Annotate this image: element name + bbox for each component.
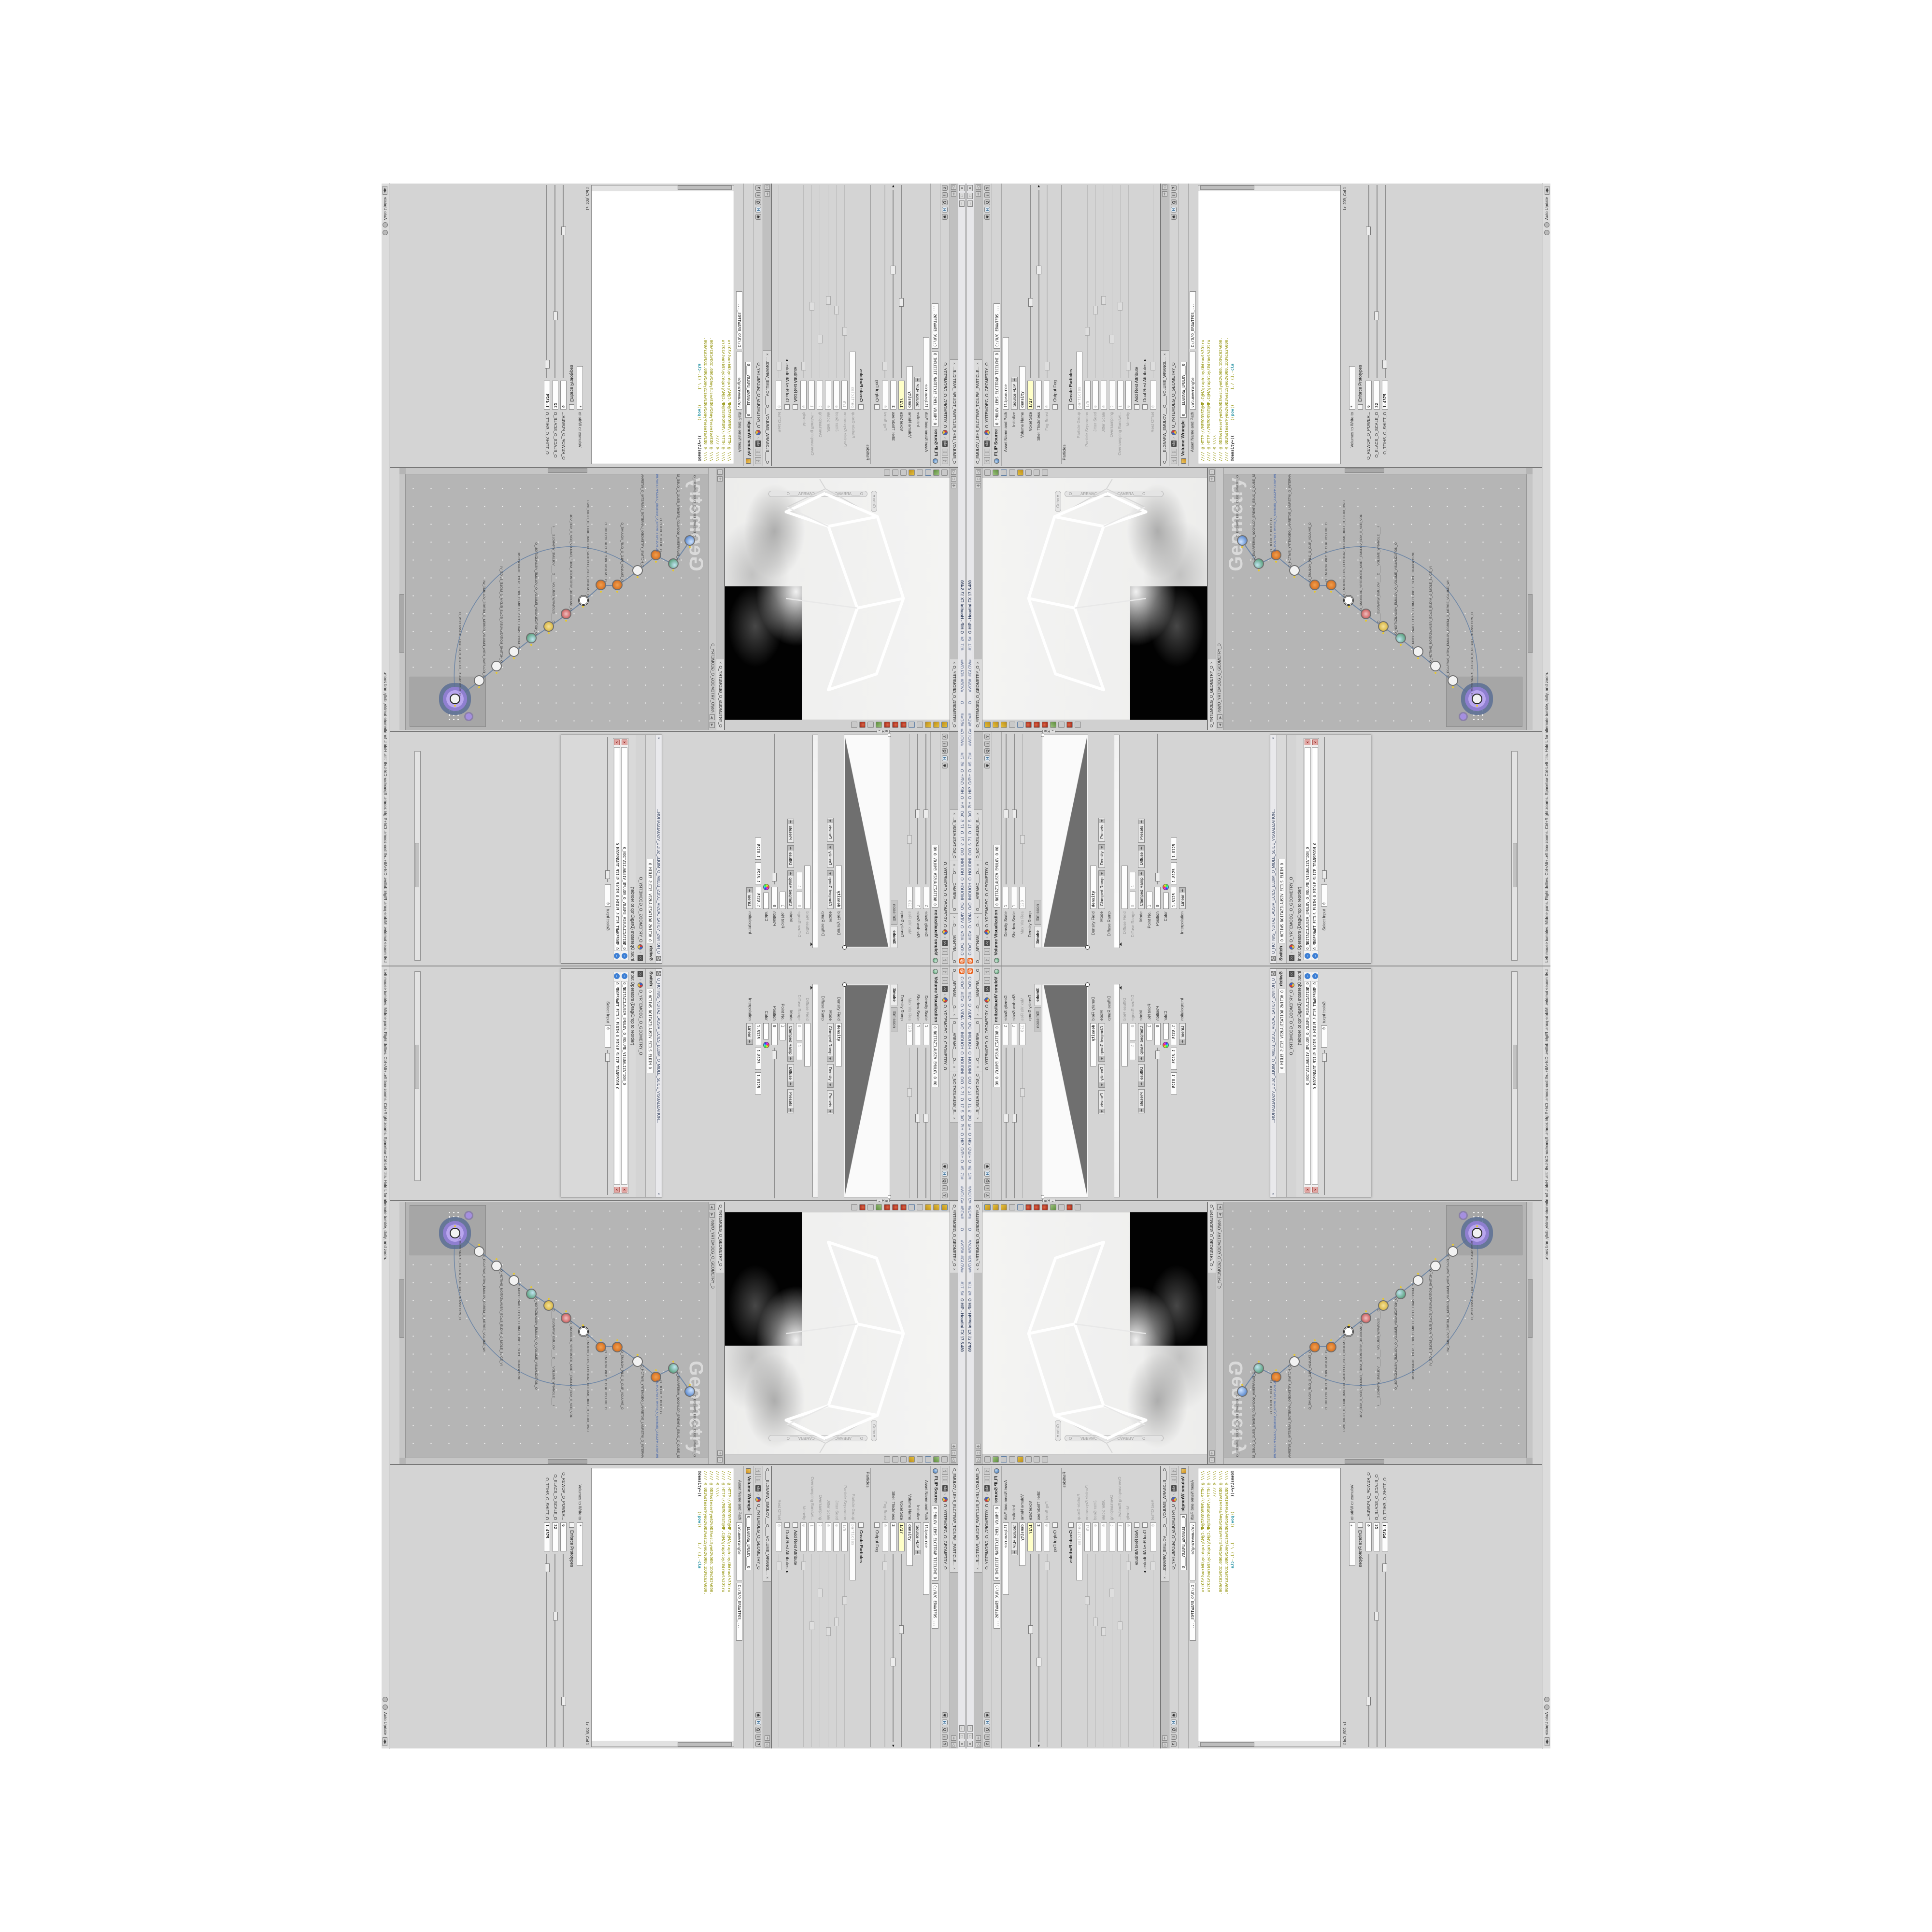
max-vis-res-slider[interactable]	[1020, 1048, 1025, 1198]
jitter-seed-field[interactable]: 0	[833, 1522, 839, 1551]
search-icon[interactable]: Q	[755, 199, 761, 205]
tab-close-icon[interactable]: ×	[976, 362, 980, 365]
oversampling-slider[interactable]	[1109, 1554, 1115, 1747]
position-slider[interactable]	[772, 734, 778, 884]
network-node[interactable]: O_EMULOV_PILC_O_CLIP_VOLUME_O	[596, 1342, 606, 1352]
volume-name-field[interactable]: density	[1019, 366, 1025, 410]
shell-thickness-field[interactable]: 3	[1036, 381, 1042, 410]
density-scale-slider[interactable]	[923, 1048, 929, 1198]
volumes-field[interactable]: *	[577, 366, 583, 410]
shell-thickness-field[interactable]: 3	[890, 1522, 896, 1551]
breadcrumb-node[interactable]: O_YRTEMOEG_O_GEOMETRY_O	[1289, 990, 1294, 1055]
nav-up-icon[interactable]: ⇧	[755, 1468, 761, 1475]
snap-prim-icon[interactable]	[859, 1204, 866, 1210]
shift-field[interactable]: 1.4375	[1382, 1522, 1388, 1551]
tab-close-icon[interactable]: ×	[952, 1117, 956, 1120]
pane-tab[interactable]: O_NOITAZILAUSIV_E...×	[974, 1071, 982, 1122]
power-field[interactable]: 6	[560, 1522, 567, 1551]
scene-viewport[interactable]: Ortho ▾ O____AREMAC____O____CAMERA____O	[982, 1202, 1208, 1464]
display-volume-icon[interactable]	[1001, 470, 1007, 476]
collapse-pane-icon[interactable]: ◁	[765, 1742, 770, 1747]
flip-node-field[interactable]: O_EMULOV_LEHS_ELCITRAP_TICILPMI_D	[994, 351, 1000, 427]
help-icon[interactable]: ?	[984, 1741, 990, 1747]
flipbook-icon[interactable]	[917, 722, 923, 728]
viewport-pane-tab[interactable]: O_YRTEMOEG_O_GEOMETRY_O×	[974, 1202, 982, 1273]
net-back-icon[interactable]: ◄	[1217, 722, 1222, 728]
maximize-button[interactable]: □	[967, 1733, 973, 1739]
diffuse-field-field[interactable]	[804, 866, 810, 909]
houdini-h-icon[interactable]: H	[942, 1719, 948, 1725]
output-fog-checkbox[interactable]	[874, 404, 880, 410]
houdini-h-icon[interactable]: H	[942, 755, 948, 761]
volume-name-field[interactable]: density	[907, 366, 913, 410]
help-icon[interactable]: ?	[942, 185, 948, 191]
tab-close-icon[interactable]: ×	[952, 916, 956, 919]
network-node[interactable]: O_MROFSNART_TLUSER_O_RESULT_TRANSFORM_O	[1472, 1228, 1482, 1238]
info-overlay-icon[interactable]	[1042, 470, 1048, 476]
density-target-dropdown[interactable]: Density	[827, 844, 834, 868]
network-editor[interactable]: O_YRTEMOEG_O_GEOMETRY_O× ✛ □ ◄ ► /obj/O_…	[1208, 468, 1533, 730]
net-back-icon[interactable]: ◄	[710, 722, 715, 728]
gear-icon[interactable]: ✱	[942, 1712, 948, 1718]
diffuse-range-min[interactable]: 0	[1130, 892, 1136, 909]
grid-toggle-icon[interactable]	[900, 1456, 907, 1463]
wrangle-pane-tab[interactable]: O____ELGNARW_EMULOV___O____VOLUME_WRANGL…	[763, 1466, 771, 1582]
network-node[interactable]: O_EMULOV_LEHS_ELCITRAP_TICILPMI_DIULF_O_…	[578, 595, 589, 606]
info-icon[interactable]: i	[1171, 1734, 1177, 1740]
diffuse-ramp-marker[interactable]	[1118, 986, 1122, 990]
color-g-field[interactable]: 1.8125	[1171, 1048, 1177, 1070]
jitter-seed-slider[interactable]	[1093, 185, 1098, 378]
remove-input-icon[interactable]: ×	[1312, 1187, 1318, 1193]
network-node[interactable]: O____ELGNARW_EMULOV____O____VOLUME_WRANG…	[543, 621, 554, 632]
input-operator-row[interactable]: → O_NOITAZILAUSIV_EMULOV_O_VOLUME_VISUAL…	[1304, 739, 1311, 960]
velocity-slider[interactable]	[801, 185, 807, 378]
breadcrumb-node[interactable]: O_YRTEMOEG_O_GEOMETRY_O	[985, 1005, 990, 1070]
network-node[interactable]: O_EMULOV_LEHS_ELCITRAP_TICILPMI_DIULF_O_…	[1343, 595, 1354, 606]
tab-close-icon[interactable]: ×	[952, 1268, 956, 1271]
oversampling-field[interactable]: 2	[1109, 381, 1115, 410]
volume-visualization-node-field[interactable]: O_NOITAZILAUSIV_EMULOV_O_VO	[932, 1024, 939, 1087]
fog-boost-slider[interactable]	[882, 185, 888, 378]
obj-context-icon[interactable]: obj	[984, 940, 990, 946]
initialize-dropdown[interactable]: Source FLIP	[1011, 377, 1018, 410]
wrangle-node-field[interactable]: O____ELGNARW_EMULOV____O	[745, 362, 752, 418]
power-slider[interactable]	[1365, 1554, 1371, 1747]
rest-offset-field[interactable]: 0	[776, 1522, 782, 1551]
shadow-scale-field[interactable]: 1	[915, 1023, 921, 1045]
tab-close-icon[interactable]: ×	[718, 1268, 722, 1271]
jitter-seed-field[interactable]: 0	[1093, 381, 1099, 410]
collapse-pane-icon[interactable]: ◁	[1162, 1742, 1167, 1747]
code-vscrollbar[interactable]	[592, 185, 734, 191]
network-node[interactable]: O____ELGNARW_EMULOV____O____VOLUME_WRANG…	[1378, 1300, 1389, 1311]
density-target-dropdown[interactable]: Density	[1098, 1064, 1105, 1088]
axis-gnomon-icon[interactable]	[1050, 722, 1056, 728]
rest-offset-field[interactable]: 0	[1150, 1522, 1156, 1551]
nav-up-icon[interactable]: ⇧	[942, 1468, 948, 1475]
velocity-slider[interactable]	[1125, 1554, 1131, 1747]
channel-pin-icon[interactable]: ▸	[1036, 185, 1041, 187]
create-particles-checkbox[interactable]	[1068, 404, 1074, 410]
group-list-icon[interactable]	[1034, 1456, 1040, 1463]
oversampling-bw-field[interactable]: 1	[809, 1522, 815, 1551]
network-editor[interactable]: O_YRTEMOEG_O_GEOMETRY_O× ✛ □ ◄ ► /obj/O_…	[1208, 1202, 1533, 1464]
oversampling-slider[interactable]	[1109, 185, 1115, 378]
code-vscrollbar[interactable]	[592, 1741, 734, 1747]
jitter-scale-field[interactable]: 0	[825, 381, 831, 410]
particle-separation-slider[interactable]	[1084, 185, 1090, 378]
network-node[interactable]: O____ELGNARW_EMULOV____O____VOLUME_WRANG…	[1378, 621, 1389, 632]
breadcrumb-node[interactable]: O_YRTEMOEG_O_GEOMETRY_O	[638, 990, 643, 1055]
grid-toggle-icon[interactable]	[1025, 470, 1032, 476]
breadcrumb-node[interactable]: O_YRTEMOEG_O_GEOMETRY_O	[638, 877, 643, 942]
shade-flat-icon[interactable]	[993, 1204, 999, 1210]
nav-down-icon[interactable]: ⇩	[1171, 449, 1177, 455]
pane-tab[interactable]: O_NOITAZILAUSIV_E...×	[950, 810, 958, 861]
search-icon[interactable]: Q	[942, 748, 948, 754]
network-pane-tab[interactable]: O_YRTEMOEG_O_GEOMETRY_O×	[716, 1202, 724, 1273]
switch-node-field[interactable]: O_HCTIWS_NOITAZILAUSIV_ECILS_ELDIM_O_	[647, 989, 654, 1073]
help-icon[interactable]: ?	[1171, 1741, 1177, 1747]
shell-thickness-slider[interactable]	[1036, 190, 1042, 378]
houdini-h-icon[interactable]: H	[755, 207, 761, 213]
diffuse-ramp-strip[interactable]	[812, 984, 818, 1197]
diffuse-target-dropdown[interactable]: Diffuse	[1138, 1064, 1145, 1087]
breadcrumb-node[interactable]: O_YRTEMOEG_O_GEOMETRY_O	[985, 862, 990, 927]
oversampling-field[interactable]: 2	[817, 1522, 823, 1551]
remove-input-icon[interactable]: ×	[614, 1187, 620, 1193]
flip-path-field[interactable]: C:/O/O_ERAWTFOS_...	[994, 303, 1000, 349]
diffuse-target-dropdown[interactable]: Diffuse	[1138, 845, 1145, 868]
gear-icon[interactable]: ✱	[755, 214, 761, 220]
jitter-scale-field[interactable]: 0	[1101, 381, 1107, 410]
tab-smoke[interactable]: Smoke	[1035, 926, 1041, 948]
display-volume-icon[interactable]	[925, 1456, 931, 1463]
density-mode-dropdown[interactable]: Clamped Ramp	[827, 870, 834, 909]
headlight-icon[interactable]	[909, 1456, 915, 1463]
network-node[interactable]: O_NOITAZILAUSIV_EMULOV_O_VOLUME_VISUALIZ…	[1395, 633, 1406, 643]
diffuse-presets-dropdown[interactable]: Presets	[788, 1089, 795, 1113]
snap-magnet-icon[interactable]	[900, 722, 907, 728]
network-node[interactable]: O_SNOGILOP_YRTEMOEG_MORF_EMULOV_BDV_O_VD…	[561, 609, 571, 619]
group-list-icon[interactable]	[892, 1456, 898, 1463]
nav-down-icon[interactable]: ⇩	[984, 948, 990, 955]
camera-view-icon[interactable]	[933, 470, 939, 476]
color-swatch[interactable]	[1163, 1023, 1169, 1039]
network-path[interactable]: /obj/O_YRTEMOEG_O_GEOMETRY_O	[1217, 643, 1222, 712]
flipbook-icon[interactable]	[1009, 722, 1015, 728]
position-field[interactable]: 0	[771, 1023, 778, 1045]
search-icon[interactable]: Q	[984, 1727, 990, 1733]
corner-drag-icon[interactable]: ✛	[952, 191, 957, 197]
snap-point-icon[interactable]	[1042, 722, 1048, 728]
color-swatch[interactable]	[764, 1023, 769, 1039]
snap-point-icon[interactable]	[884, 1204, 890, 1210]
nav-up-icon[interactable]: ⇧	[984, 968, 990, 975]
create-particles-checkbox[interactable]	[858, 1522, 864, 1528]
flip-path-field[interactable]: C:/O/O_ERAWTFOS_...	[932, 303, 939, 349]
search-icon[interactable]: Q	[1171, 199, 1177, 205]
interpolation-dropdown[interactable]: Linear	[1179, 1023, 1186, 1045]
dual-rest-checkbox[interactable]	[1142, 404, 1148, 410]
pane-tab[interactable]: O____ARTNAM____O...×	[974, 966, 982, 1019]
tab-close-icon[interactable]: ×	[1163, 353, 1167, 355]
obj-context-icon[interactable]: obj	[1171, 440, 1177, 447]
network-node[interactable]: O_MROFSNART_ECILS_ELDIM_O_MIDLE_SLICE_TR…	[1413, 1275, 1423, 1286]
dual-rest-checkbox[interactable]	[784, 1522, 790, 1528]
nav-down-icon[interactable]: ⇩	[942, 449, 948, 455]
power-slider[interactable]	[1365, 185, 1371, 378]
diffuse-ramp-marker[interactable]	[1118, 942, 1122, 946]
select-input-field[interactable]: 0	[605, 1025, 611, 1048]
jitter-scale-field[interactable]: 0	[825, 1522, 831, 1551]
camera-view-icon[interactable]	[993, 470, 999, 476]
net-forward-icon[interactable]: ►	[710, 1212, 715, 1218]
shade-smooth-icon[interactable]	[941, 1204, 948, 1210]
pane-tab[interactable]: O____ARTNAM____O...×	[950, 913, 958, 966]
display-volume-icon[interactable]	[1001, 1456, 1007, 1463]
corner-drag-icon[interactable]: ✛	[1209, 1450, 1215, 1456]
search-icon[interactable]: Q	[1171, 1727, 1177, 1733]
breadcrumb-node[interactable]: O_YRTEMOEG_O_GEOMETRY_O	[756, 1504, 761, 1570]
tab-smoke[interactable]: Smoke	[1035, 984, 1041, 1006]
obj-context-icon[interactable]: obj	[638, 971, 643, 977]
info-overlay-icon[interactable]	[884, 1456, 890, 1463]
lighting-icon[interactable]	[917, 470, 923, 476]
info-icon[interactable]: i	[984, 1734, 990, 1740]
network-editor[interactable]: O_YRTEMOEG_O_GEOMETRY_O× ✛ □ ◄ ► /obj/O_…	[399, 1202, 724, 1464]
search-icon[interactable]: Q	[984, 1178, 990, 1184]
network-node[interactable]: O_DLIUB_O_BUILD_O BD.NO1.PETS.TRIPAS_O_G…	[1271, 1372, 1281, 1382]
flip-pane-tab[interactable]: O_EMULOV_LEHS_ELCITRAP_TICILPMI_PARTICLE…	[974, 1466, 982, 1573]
oversampling-bw-slider[interactable]	[809, 185, 815, 378]
dual-rest-checkbox[interactable]	[1142, 1522, 1148, 1528]
flip-path-field[interactable]: C:/O/O_ERAWTFOS_...	[932, 1583, 939, 1629]
pane-tab[interactable]: O____ARTNAM____O...×	[974, 913, 982, 966]
partial-window-scrollbar[interactable]	[414, 971, 421, 1181]
net-forward-icon[interactable]: ►	[1217, 1212, 1222, 1218]
network-node[interactable]: O_ECAFRUS_HTIW_EMULOV_EGREM_O_MERGE_VOLU…	[1448, 1246, 1458, 1257]
network-vscrollbar[interactable]	[1224, 1458, 1526, 1464]
info-icon[interactable]: i	[984, 192, 990, 198]
obj-context-icon[interactable]: obj	[942, 1485, 948, 1492]
network-node[interactable]: O_EREHPS_EBUC_O_CUBE_SPHERE_O	[1237, 535, 1248, 546]
channel-pin-icon[interactable]: ▸	[785, 1571, 790, 1574]
network-node[interactable]: O_EMULOV_PILC_O_CLIP_VOLUME_O	[1326, 580, 1336, 590]
position-slider[interactable]	[1155, 734, 1161, 884]
info-overlay-icon[interactable]	[1042, 1456, 1048, 1463]
tab-close-icon[interactable]: ×	[718, 662, 722, 664]
network-node[interactable]: O_ENARFERIW_NOGYLOP_EREHPS_EBUC_O_CUBE_S…	[668, 1363, 679, 1374]
network-node[interactable]: O____ELGNARW_EMULOV____O____VOLUME_WRANG…	[543, 1300, 554, 1311]
rest-offset-slider[interactable]	[776, 1554, 782, 1747]
headlight-icon[interactable]	[1017, 470, 1023, 476]
point-no-field[interactable]: 1	[1146, 1023, 1152, 1040]
diffuse-target-dropdown[interactable]: Diffuse	[788, 1064, 795, 1087]
tab-emission[interactable]: Emission	[1035, 1007, 1041, 1032]
network-hscrollbar[interactable]	[1526, 1202, 1533, 1458]
viewport-pane-tab[interactable]: O_YRTEMOEG_O_GEOMETRY_O×	[950, 659, 958, 730]
max-vis-res-field[interactable]: 128	[1019, 887, 1025, 909]
network-node[interactable]: O_MROFSNART_ECILS_ELDIM_O_MIDLE_SLICE_TR…	[509, 1275, 519, 1286]
density-ramp-editor[interactable]: ⊞ +	[844, 984, 890, 1197]
diffuse-presets-dropdown[interactable]: Presets	[1138, 819, 1145, 843]
collapse-pane-icon[interactable]: ◁	[952, 469, 957, 475]
shift-slider[interactable]	[1382, 185, 1388, 378]
scene-viewport[interactable]: Ortho ▾ O____AREMAC____O____CAMERA____O	[724, 468, 950, 730]
tab-close-icon[interactable]: ×	[765, 1577, 769, 1579]
jitter-seed-field[interactable]: 0	[1093, 1522, 1099, 1551]
max-vis-res-field[interactable]: 128	[907, 1023, 913, 1045]
axis-gnomon-icon[interactable]	[876, 1204, 882, 1210]
density-target-dropdown[interactable]: Density	[827, 1064, 834, 1088]
shade-wire-icon[interactable]	[1001, 1204, 1007, 1210]
power-field[interactable]: 6	[1365, 381, 1372, 410]
info-icon[interactable]: i	[942, 192, 948, 198]
breadcrumb-node[interactable]: O_YRTEMOEG_O_GEOMETRY_O	[943, 862, 948, 927]
jitter-seed-slider[interactable]	[1093, 1554, 1098, 1747]
color-g-field[interactable]: 1.8125	[755, 862, 761, 884]
vex-code-editor[interactable]: //// @ HTTP://MEMORYST@MP.C@M/graphtoy/#…	[591, 1468, 734, 1747]
tab-close-icon[interactable]: ×	[952, 1013, 956, 1016]
help-icon[interactable]: ?	[755, 1741, 761, 1747]
power-field[interactable]: 6	[560, 381, 567, 410]
switch-window-close-icon[interactable]: ×	[1271, 1193, 1276, 1195]
tab-emission[interactable]: Emission	[1035, 900, 1041, 925]
pane-tab[interactable]: O____AREMAC____O...×	[950, 1019, 958, 1071]
input-operator-row[interactable]: → O_NOITAZILAUSIV_EMULOV_O_VOLUME_VISUAL…	[621, 739, 628, 960]
help-icon[interactable]: ?	[984, 185, 990, 191]
output-fog-checkbox[interactable]	[874, 1522, 880, 1528]
network-node[interactable]: O_ENARFERIW_NOGYLOP_EREHPS_EBUC_O_CUBE_S…	[1253, 558, 1264, 569]
obj-context-icon[interactable]: obj	[984, 986, 990, 992]
corner-drag-icon[interactable]: ✛	[976, 1735, 981, 1741]
auto-update-label[interactable]: Auto Update	[1545, 1712, 1549, 1735]
scale-slider[interactable]	[553, 1554, 558, 1747]
channel-pin-icon[interactable]: ▸	[1142, 359, 1147, 361]
shift-slider[interactable]	[1382, 1554, 1388, 1747]
ramp-handle-low[interactable]	[1085, 982, 1090, 987]
network-node[interactable]: O_NOITAZILAUSIV_EMULOV_O_VOLUME_VISUALIZ…	[1395, 1289, 1406, 1299]
minimize-button[interactable]: –	[959, 1725, 965, 1732]
handles-icon[interactable]	[1058, 722, 1065, 728]
tab-close-icon[interactable]: ×	[976, 1013, 980, 1016]
houdini-h-icon[interactable]: H	[984, 755, 990, 761]
shadow-scale-slider[interactable]	[915, 734, 921, 884]
diffuse-ramp-strip[interactable]	[1114, 984, 1120, 1197]
scene-viewport[interactable]: Ortho ▾ O____AREMAC____O____CAMERA____O	[982, 468, 1208, 730]
info-icon[interactable]: i	[942, 1185, 948, 1191]
scale-slider[interactable]	[553, 185, 558, 378]
nav-up-icon[interactable]: ⇧	[755, 457, 761, 464]
nav-down-icon[interactable]: ⇩	[942, 977, 948, 984]
network-node[interactable]: O_HCTIWS_NOITAZILAUSIV_ECILS_ELDIM_O_MID…	[1430, 661, 1441, 671]
diffuse-range-max[interactable]: 1	[796, 872, 802, 889]
diffuse-mode-dropdown[interactable]: Clamped Ramp	[788, 870, 795, 909]
tab-close-icon[interactable]: ×	[1209, 1268, 1214, 1271]
enforce-checkbox[interactable]	[569, 1522, 574, 1528]
enforce-checkbox[interactable]	[569, 404, 574, 410]
help-icon[interactable]: ?	[942, 1741, 948, 1747]
view-tool-icon[interactable]	[851, 1204, 857, 1210]
oversampling-field[interactable]: 2	[817, 381, 823, 410]
collapse-pane-icon[interactable]: ◁	[952, 1457, 957, 1463]
shade-flat-icon[interactable]	[933, 722, 939, 728]
tab-close-icon[interactable]: ×	[976, 1268, 980, 1271]
obj-context-icon[interactable]: obj	[755, 1485, 761, 1492]
switch-node-field[interactable]: O_HCTIWS_NOITAZILAUSIV_ECILS_ELDIM_O_	[647, 859, 654, 943]
density-scale-field[interactable]: 1	[923, 1023, 929, 1045]
shell-thickness-field[interactable]: 3	[1036, 1522, 1042, 1551]
add-rest-checkbox[interactable]	[793, 1522, 798, 1528]
partial-window-scrollbar[interactable]	[1511, 971, 1518, 1181]
tab-close-icon[interactable]: ×	[952, 1066, 956, 1068]
nav-up-icon[interactable]: ⇧	[942, 457, 948, 464]
jitter-scale-slider[interactable]	[1101, 185, 1107, 378]
maximize-pane-icon[interactable]: □	[718, 469, 723, 475]
color-b-field[interactable]: 1.8125	[1171, 1072, 1177, 1094]
scene-viewport[interactable]: Ortho ▾ O____AREMAC____O____CAMERA____O	[724, 1202, 950, 1464]
volume-visualization-node-field[interactable]: O_NOITAZILAUSIV_EMULOV_O_VO	[994, 1024, 1000, 1087]
snap-magnet-icon[interactable]	[1025, 722, 1032, 728]
density-field-field[interactable]: density	[1090, 1023, 1096, 1066]
flip-node-field[interactable]: O_EMULOV_LEHS_ELCITRAP_TICILPMI_D	[932, 351, 939, 427]
wrangle-asset-field[interactable]: volumewrangle	[736, 1522, 742, 1580]
wrangle-asset-field[interactable]: volumewrangle	[736, 352, 742, 410]
maximize-pane-icon[interactable]: □	[1209, 1457, 1215, 1463]
nav-up-icon[interactable]: ⇧	[942, 968, 948, 975]
gear-icon[interactable]: ✱	[942, 763, 948, 768]
density-ramp-editor[interactable]: ⊞ +	[1042, 984, 1088, 1197]
flip-pane-tab[interactable]: O_EMULOV_LEHS_ELCITRAP_TICILPMI_PARTICLE…	[950, 1466, 958, 1573]
wrangle-asset-field[interactable]: volumewrangle	[1190, 1522, 1196, 1580]
position-slider[interactable]	[772, 1048, 778, 1198]
volumes-field[interactable]: *	[577, 1522, 583, 1566]
add-rest-checkbox[interactable]	[1134, 404, 1139, 410]
vex-code-editor[interactable]: //// @ HTTP://MEMORYST@MP.C@M/graphtoy/#…	[1198, 1468, 1341, 1747]
voxel-size-slider[interactable]	[899, 1554, 905, 1747]
density-scale-slider[interactable]	[1003, 734, 1009, 884]
diffuse-ramp-marker[interactable]	[810, 986, 814, 990]
remove-input-icon[interactable]: ×	[1305, 739, 1310, 745]
tab-close-icon[interactable]: ×	[1163, 1577, 1167, 1579]
input-operator-row[interactable]: → O_MROFSNART_ECILS_ELDIM_O_MIDLE_SLICE_…	[613, 972, 621, 1193]
position-slider[interactable]	[1155, 1048, 1161, 1198]
color-g-field[interactable]: 1.8125	[1171, 862, 1177, 884]
network-node[interactable]: O_HCTIWS_YRTEMOEG_LANRETXE_LANRETNI_O_IN…	[632, 1356, 643, 1367]
shade-wire-icon[interactable]	[925, 722, 931, 728]
oversampling-bw-field[interactable]: 1	[809, 381, 815, 410]
network-node[interactable]: O_HCTIWS_YRTEMOEG_LANRETXE_LANRETNI_O_IN…	[632, 565, 643, 576]
obj-context-icon[interactable]: obj	[942, 940, 948, 946]
interpolation-dropdown[interactable]: Linear	[1179, 887, 1186, 909]
channel-pin-icon[interactable]: ▸	[785, 359, 790, 361]
density-scale-field[interactable]: 1	[1003, 1023, 1009, 1045]
search-icon[interactable]: Q	[755, 1727, 761, 1733]
jitter-scale-slider[interactable]	[825, 185, 831, 378]
network-node[interactable]: O_EMULOV_LEHS_ELCITRAP_TICILPMI_DIULF_O_…	[1343, 1326, 1354, 1337]
obj-context-icon[interactable]: obj	[1289, 971, 1294, 977]
scale-field[interactable]: 32	[552, 381, 558, 410]
shadow-scale-field[interactable]: 1	[1011, 1023, 1017, 1045]
switch-window-title-bar[interactable]: @ O_HCTIWS_NOITAZILAUSIV_ECILS_ELDIM_O_M…	[655, 735, 662, 963]
jitter-scale-field[interactable]: 0	[1101, 1522, 1107, 1551]
color-r-field[interactable]: 1.8125	[1171, 1023, 1177, 1045]
flip-node-field[interactable]: O_EMULOV_LEHS_ELCITRAP_TICILPMI_D	[932, 1505, 939, 1581]
flip-node-field[interactable]: O_EMULOV_LEHS_ELCITRAP_TICILPMI_D	[994, 1505, 1000, 1581]
close-button[interactable]: ×	[967, 1741, 973, 1747]
